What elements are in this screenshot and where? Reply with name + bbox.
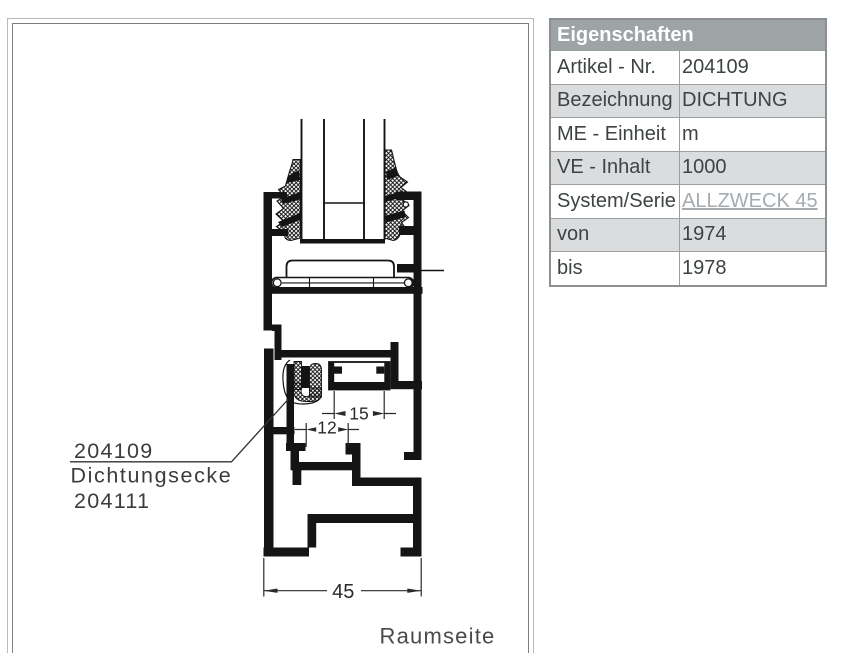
- svg-text:Raumseite: Raumseite: [380, 624, 496, 649]
- svg-text:12: 12: [317, 418, 336, 438]
- svg-text:15: 15: [349, 404, 368, 424]
- svg-text:Dichtungsecke: Dichtungsecke: [71, 464, 233, 488]
- svg-text:204111: 204111: [74, 489, 150, 513]
- svg-text:204109: 204109: [74, 439, 154, 463]
- svg-text:45: 45: [332, 581, 354, 603]
